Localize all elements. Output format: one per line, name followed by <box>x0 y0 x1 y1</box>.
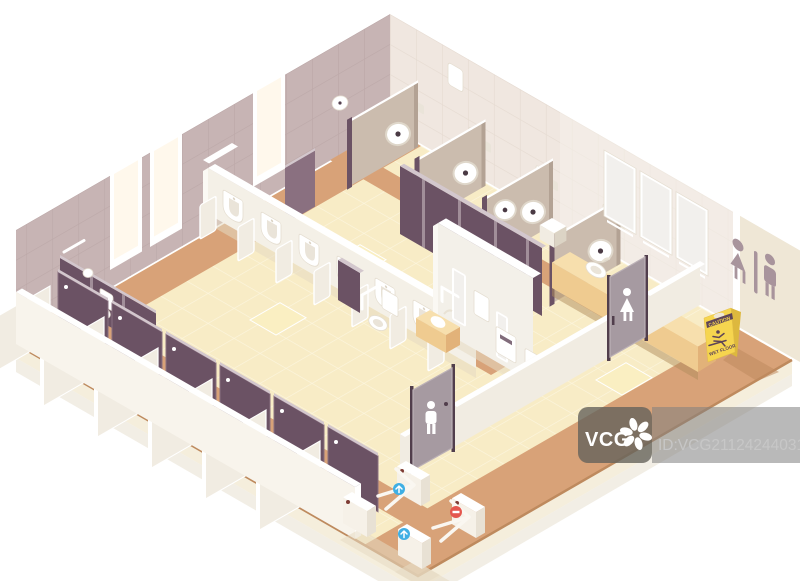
arrow-up-circle-icon <box>393 483 405 495</box>
scene: CAUTION WET FLOOR VCG ID:VCG211242440315 <box>0 0 800 581</box>
watermark: VCG ID:VCG211242440315 <box>578 407 800 463</box>
arrow-up-circle-icon <box>398 528 410 540</box>
toilet-paper-roll <box>83 269 93 278</box>
sign-divider <box>754 250 758 294</box>
door-handle <box>444 402 448 406</box>
window <box>150 129 182 248</box>
no-entry-circle-icon <box>450 506 462 518</box>
isometric-restroom-illustration: CAUTION WET FLOOR VCG ID:VCG211242440315 <box>0 0 800 581</box>
watermark-id-text: ID:VCG211242440315 <box>658 437 800 454</box>
window <box>110 152 142 271</box>
window <box>253 69 285 188</box>
watermark-bar <box>652 407 800 463</box>
door-handle <box>612 316 615 325</box>
